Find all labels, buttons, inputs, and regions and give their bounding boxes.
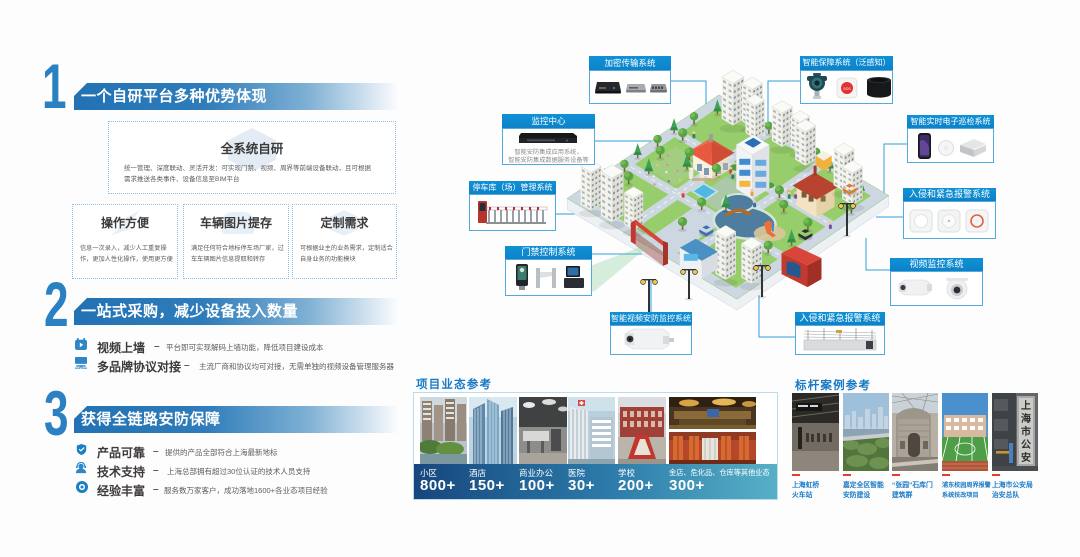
svg-text:上: 上 [1021,399,1031,412]
svg-text:公: 公 [1021,439,1031,451]
svg-text:海: 海 [1021,412,1031,425]
svg-text:安: 安 [1021,451,1031,464]
svg-text:SOS: SOS [843,87,851,91]
svg-text:市: 市 [1021,425,1031,438]
